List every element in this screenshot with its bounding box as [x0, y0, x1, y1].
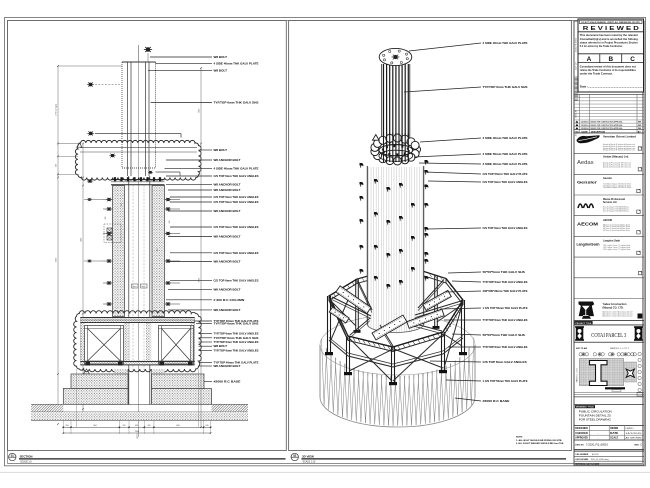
svg-text:31520_FD_65010: 31520_FD_65010 — [575, 38, 577, 52]
svg-text:C/S TOP 6mm THK GALV ANGLES: C/S TOP 6mm THK GALV ANGLES — [214, 251, 259, 255]
svg-text:Date :: Date : — [580, 84, 588, 88]
svg-text:TYP.TOP 6mm THK GALV ANGLES: TYP.TOP 6mm THK GALV ANGLES — [483, 318, 528, 322]
svg-text:DWG NO.: DWG NO. — [575, 445, 584, 447]
svg-text:FOUNTAIN DETAIL 25: FOUNTAIN DETAIL 25 — [579, 414, 612, 418]
svg-text:AECOM: AECOM — [577, 221, 598, 226]
svg-text:COTAI PARCEL 3: COTAI PARCEL 3 — [591, 332, 626, 339]
svg-text:TYP.TOP 6mm THK GALV ANGLES: TYP.TOP 6mm THK GALV ANGLES — [214, 340, 259, 344]
svg-text:CAD FILE NAME: CAD FILE NAME — [575, 458, 589, 461]
svg-text:DATE: DATE — [610, 432, 619, 435]
svg-text:2964: 2964 — [135, 431, 139, 433]
svg-text:REV: REV — [635, 445, 640, 447]
svg-text:W8 BOLT: W8 BOLT — [214, 344, 228, 348]
svg-text:500: 500 — [121, 204, 123, 207]
svg-text:5.4 for action by the Trade Co: 5.4 for action by the Trade Contractor. — [580, 45, 623, 48]
svg-text:02: 02 — [293, 453, 297, 457]
svg-text:ISSUED FOR CONSTRUCTION APPROV: ISSUED FOR CONSTRUCTION APPROVAL — [591, 121, 624, 124]
svg-text:C/S TOP 6mm THK GALV ANGLES: C/S TOP 6mm THK GALV ANGLES — [214, 200, 259, 204]
svg-text:W8 ANCHOR BOLT: W8 ANCHOR BOLT — [214, 209, 241, 213]
svg-text:SCALE 1:5: SCALE 1:5 — [20, 461, 32, 464]
svg-text:SECTION: SECTION — [20, 455, 33, 459]
svg-text:2. ALL FILLET WELDED SHOULD BE: 2. ALL FILLET WELDED SHOULD BE 5mm THK. — [516, 442, 564, 445]
svg-text:1. ALL BOLT SHOULD BE FIXING O: 1. ALL BOLT SHOULD BE FIXING ON SITE. — [516, 439, 562, 442]
svg-text:W8 BOLT: W8 BOLT — [214, 68, 228, 72]
svg-text:Services Ltd.: Services Ltd. — [603, 201, 617, 204]
svg-text:12/2014: 12/2014 — [581, 124, 590, 127]
svg-text:500: 500 — [157, 249, 159, 252]
svg-text:01: 01 — [11, 453, 15, 457]
svg-text:12/2014: 12/2014 — [581, 121, 590, 124]
svg-text:AS SHOWN: AS SHOWN — [625, 437, 642, 440]
svg-text:under the Trade Contract.: under the Trade Contract. — [580, 73, 613, 76]
svg-text:C/S TOP 6mm THK GALV ANGLES: C/S TOP 6mm THK GALV ANGLES — [214, 279, 259, 283]
svg-text:Langdon Seah: Langdon Seah — [603, 240, 621, 243]
svg-text:LWKD: LWKD — [625, 428, 634, 430]
svg-text:LangdonSeah: LangdonSeah — [577, 243, 600, 247]
svg-text:AECOM: AECOM — [603, 219, 612, 222]
svg-text:REFERENCE CAD FILE NAME: REFERENCE CAD FILE NAME — [575, 462, 600, 465]
svg-text:TYP.TOP 6mm THK GALV SHS: TYP.TOP 6mm THK GALV SHS — [214, 336, 259, 340]
svg-text:TYP.TOP 6mm THK GALV SHS: TYP.TOP 6mm THK GALV SHS — [214, 322, 259, 326]
svg-text:500: 500 — [169, 221, 171, 224]
svg-text:C: C — [630, 56, 635, 63]
svg-text:Aedas (Macau) Ltd.: Aedas (Macau) Ltd. — [603, 155, 629, 158]
svg-text:200: 200 — [123, 425, 126, 427]
svg-text:1 C/S TOP 50mm THK GALV PLATE: 1 C/S TOP 50mm THK GALV PLATE — [483, 306, 528, 310]
svg-text:DRAWING TITLE: DRAWING TITLE — [576, 406, 595, 409]
svg-text:PARCEL 1, LOT 2: PARCEL 1, LOT 2 — [610, 347, 630, 350]
svg-text:TYP.TOP 6mm THK GALV SHS: TYP.TOP 6mm THK GALV SHS — [483, 85, 528, 89]
svg-text:FOR STEEL DRAWING: FOR STEEL DRAWING — [579, 418, 611, 422]
svg-text:ISSUED FOR CONSTRUCTION APPROV: ISSUED FOR CONSTRUCTION APPROVAL — [591, 127, 624, 130]
svg-text:4 SIDE 50mm THK GALV PLATE: 4 SIDE 50mm THK GALV PLATE — [483, 152, 528, 156]
svg-text:SCALE 1:10: SCALE 1:10 — [303, 461, 316, 464]
svg-text:864: 864 — [94, 425, 97, 427]
svg-text:C/S TOP 6mm GALV ANGLES: C/S TOP 6mm GALV ANGLES — [483, 360, 527, 364]
svg-text:3 1520_FQ_65010: 3 1520_FQ_65010 — [586, 443, 609, 447]
svg-text:4 SIDE 40mm THK GALV PLATE: 4 SIDE 40mm THK GALV PLATE — [483, 162, 528, 166]
svg-text:1 C/S TOP 50mm THK GALV PLATE: 1 C/S TOP 50mm THK GALV PLATE — [483, 379, 528, 383]
svg-text:1520_FD_65010.dwg: 1520_FD_65010.dwg — [591, 459, 609, 461]
svg-text:5197 147: 5197 147 — [575, 62, 577, 70]
svg-text:W8 BOLT: W8 BOLT — [214, 148, 228, 152]
svg-text:C/S TOP 6mm THK GALV ANGLES: C/S TOP 6mm THK GALV ANGLES — [214, 195, 259, 199]
svg-text:50*50*5mm THK GALV SHS: 50*50*5mm THK GALV SHS — [483, 270, 526, 274]
svg-text:4 SIDE 40mm THK GALV PLATE: 4 SIDE 40mm THK GALV PLATE — [483, 41, 528, 45]
svg-text:DESIGNED: DESIGNED — [575, 428, 588, 430]
svg-text:Yadea Construction: Yadea Construction — [603, 302, 627, 306]
svg-text:DO NOT SCALE DRAWING. VERIFY A: DO NOT SCALE DRAWING. VERIFY ALL DIMENSI… — [581, 21, 641, 24]
svg-text:4 SIDE 40mm THK GALV PLATE: 4 SIDE 40mm THK GALV PLATE — [214, 167, 259, 171]
svg-text:B: B — [608, 56, 613, 63]
svg-text:Grout: Grout — [132, 285, 137, 288]
svg-text:CAD NUMBER: CAD NUMBER — [575, 453, 589, 456]
svg-text:C/S TOP 6mm THK GALV ANGLES: C/S TOP 6mm THK GALV ANGLES — [214, 225, 259, 229]
svg-text:500: 500 — [105, 217, 107, 220]
svg-text:APPROVED: APPROVED — [575, 437, 588, 440]
svg-text:#2000 R.C BASE: #2000 R.C BASE — [483, 399, 510, 403]
svg-text:300: 300 — [56, 164, 58, 167]
svg-text:Consultant(s)(s) and is accord: Consultant(s)(s) and is accorded the fol… — [580, 38, 639, 41]
svg-text:450: 450 — [135, 425, 138, 427]
svg-text:TYP.TOP 6mm THK GALV ANGLES: TYP.TOP 6mm THK GALV ANGLES — [214, 348, 259, 352]
svg-text:Gensler: Gensler — [603, 177, 612, 180]
svg-text:PROJECT TITLE: PROJECT TITLE — [575, 323, 592, 325]
svg-text:TYP.TOP 6mm THK GALV ANGLES: TYP.TOP 6mm THK GALV ANGLES — [483, 345, 528, 349]
svg-text:Venetian Orient Limited: Venetian Orient Limited — [603, 136, 637, 139]
svg-text:#2000 R.C BASE: #2000 R.C BASE — [214, 380, 241, 384]
svg-text:4 SIDE 40mm THK GALV PLATE: 4 SIDE 40mm THK GALV PLATE — [483, 136, 528, 140]
svg-text:C/S TOP 6mm THK GALV ANGLES: C/S TOP 6mm THK GALV ANGLES — [483, 180, 528, 184]
svg-text:200: 200 — [206, 425, 209, 427]
svg-text:TYP.TOP 6mm THK GALV SHS: TYP.TOP 6mm THK GALV SHS — [214, 101, 259, 105]
svg-text:W8 ANCHOR BOLT: W8 ANCHOR BOLT — [214, 260, 241, 264]
svg-text:W8 ANCHOR BOLT: W8 ANCHOR BOLT — [214, 308, 241, 312]
svg-text:400*200*20mm THK GALV PLATE: 400*200*20mm THK GALV PLATE — [483, 289, 528, 293]
svg-text:(Macau) CO. LTD.: (Macau) CO. LTD. — [603, 305, 624, 309]
svg-text:ISSUED FOR CONSTRUCTION APPROV: ISSUED FOR CONSTRUCTION APPROVAL — [591, 124, 624, 127]
svg-text:KEY PLAN: KEY PLAN — [576, 347, 587, 350]
svg-text:SCALE: SCALE — [610, 437, 618, 440]
svg-text:W8 ANCHOR BOLT: W8 ANCHOR BOLT — [214, 188, 241, 192]
svg-text:status referred to in Project: status referred to in Project Procedures… — [580, 41, 639, 44]
svg-text:A: A — [587, 56, 592, 63]
svg-text:3D VIEW: 3D VIEW — [302, 455, 314, 459]
svg-text:W8 ANCHOR BOLT: W8 ANCHOR BOLT — [214, 182, 241, 186]
svg-text:relieve the Trade Contractor o: relieve the Trade Contractor of its resp… — [580, 69, 637, 72]
svg-text:W8 ANCHOR BOLT: W8 ANCHOR BOLT — [214, 235, 241, 239]
svg-text:W8 BOLT: W8 BOLT — [214, 55, 228, 59]
svg-text:W8 ANCHOR BOLT: W8 ANCHOR BOLT — [214, 364, 241, 368]
svg-text:W8 ANCHOR BOLT: W8 ANCHOR BOLT — [214, 287, 241, 291]
svg-text:Consultant review of this docu: Consultant review of this document does … — [580, 65, 636, 68]
svg-text:200: 200 — [148, 425, 151, 427]
svg-text:Aedas: Aedas — [577, 160, 594, 166]
svg-text:4 SIDE 40mm THK GALV PLATE: 4 SIDE 40mm THK GALV PLATE — [214, 62, 259, 66]
svg-text:R E V I E W E D: R E V I E W E D — [583, 26, 639, 32]
svg-text:C: C — [640, 443, 642, 447]
svg-text:C/S TOP 6mm THK GALV ANGLES: C/S TOP 6mm THK GALV ANGLES — [483, 226, 528, 230]
svg-text:CHECKED: CHECKED — [575, 433, 588, 435]
svg-text:NOTE:: NOTE: — [516, 437, 523, 439]
svg-text:Grout: Grout — [141, 285, 146, 288]
svg-text:TYP.TOP 6mm THK GALV ANGLES: TYP.TOP 6mm THK GALV ANGLES — [214, 332, 259, 336]
svg-text:W8 ANCHOR BOLT: W8 ANCHOR BOLT — [214, 158, 241, 162]
svg-text:864: 864 — [177, 425, 180, 427]
svg-text:1759 (a high): 1759 (a high) — [56, 104, 58, 116]
svg-text:12/2014: 12/2014 — [581, 127, 590, 130]
svg-text:PARCEL 1, LOT 1: PARCEL 1, LOT 1 — [576, 368, 579, 382]
svg-text:A-1520: A-1520 — [592, 453, 599, 456]
svg-text:This document has been noted b: This document has been noted by the rele… — [580, 34, 638, 37]
svg-text:14/1/2015: 14/1/2015 — [625, 433, 642, 435]
svg-text:DRAWN: DRAWN — [610, 427, 618, 430]
svg-text:C/S TOP 50mm THK GALV PLATE: C/S TOP 50mm THK GALV PLATE — [483, 172, 528, 176]
svg-text:200: 200 — [66, 425, 69, 427]
svg-text:Gensler: Gensler — [577, 181, 598, 185]
svg-text:50*50*5mm THK GALV SHS: 50*50*5mm THK GALV SHS — [483, 333, 526, 337]
svg-text:TYP.TOP 6mm THK GALV ANGLES: TYP.TOP 6mm THK GALV ANGLES — [483, 280, 528, 284]
svg-text:PUBLIC CIRCULATION: PUBLIC CIRCULATION — [579, 410, 612, 414]
svg-text:C/S TOP 6mm THK GALV ANGLES: C/S TOP 6mm THK GALV ANGLES — [214, 174, 259, 178]
svg-text:# 300 R.C COLUMN: # 300 R.C COLUMN — [214, 298, 245, 302]
svg-text:TYP.TOP 40mm THK GALV PLATE: TYP.TOP 40mm THK GALV PLATE — [214, 361, 259, 365]
